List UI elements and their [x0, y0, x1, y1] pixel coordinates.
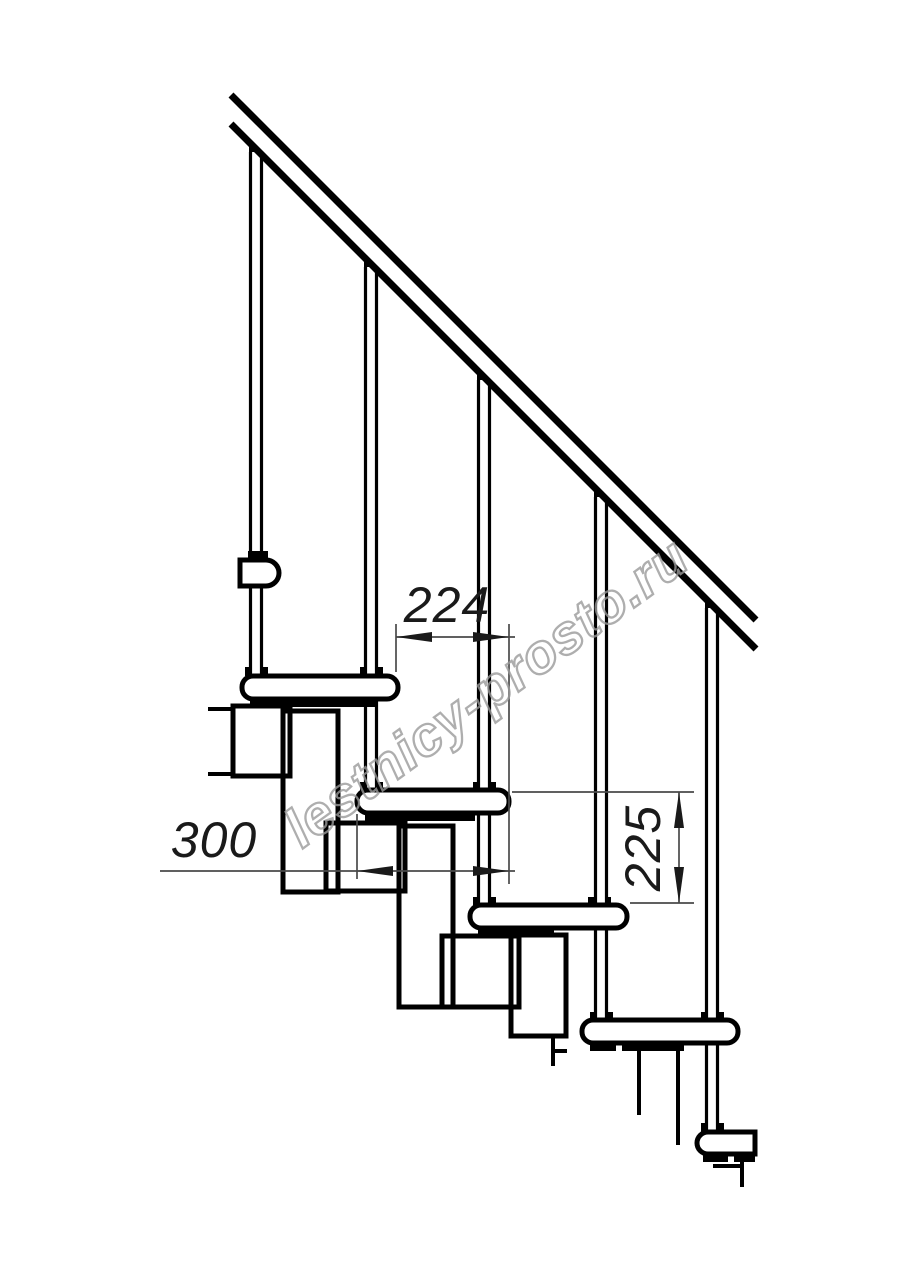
baluster-1	[249, 140, 263, 676]
baluster-5	[705, 596, 719, 1132]
tread-4	[582, 1020, 738, 1043]
dimension-label-depth: 300	[171, 812, 257, 868]
tread-1	[242, 676, 398, 699]
staircase-drawing-page: 224 300 225 lestnicy-prosto.ru	[0, 0, 914, 1280]
staircase-technical-drawing: 224 300 225 lestnicy-prosto.ru	[0, 0, 914, 1280]
drawing-background	[0, 0, 914, 1280]
tread-5	[697, 1132, 755, 1154]
baluster-2	[364, 255, 378, 791]
dimension-label-run: 224	[403, 577, 490, 633]
tread-3	[470, 905, 627, 928]
dimension-label-rise: 225	[615, 805, 671, 892]
